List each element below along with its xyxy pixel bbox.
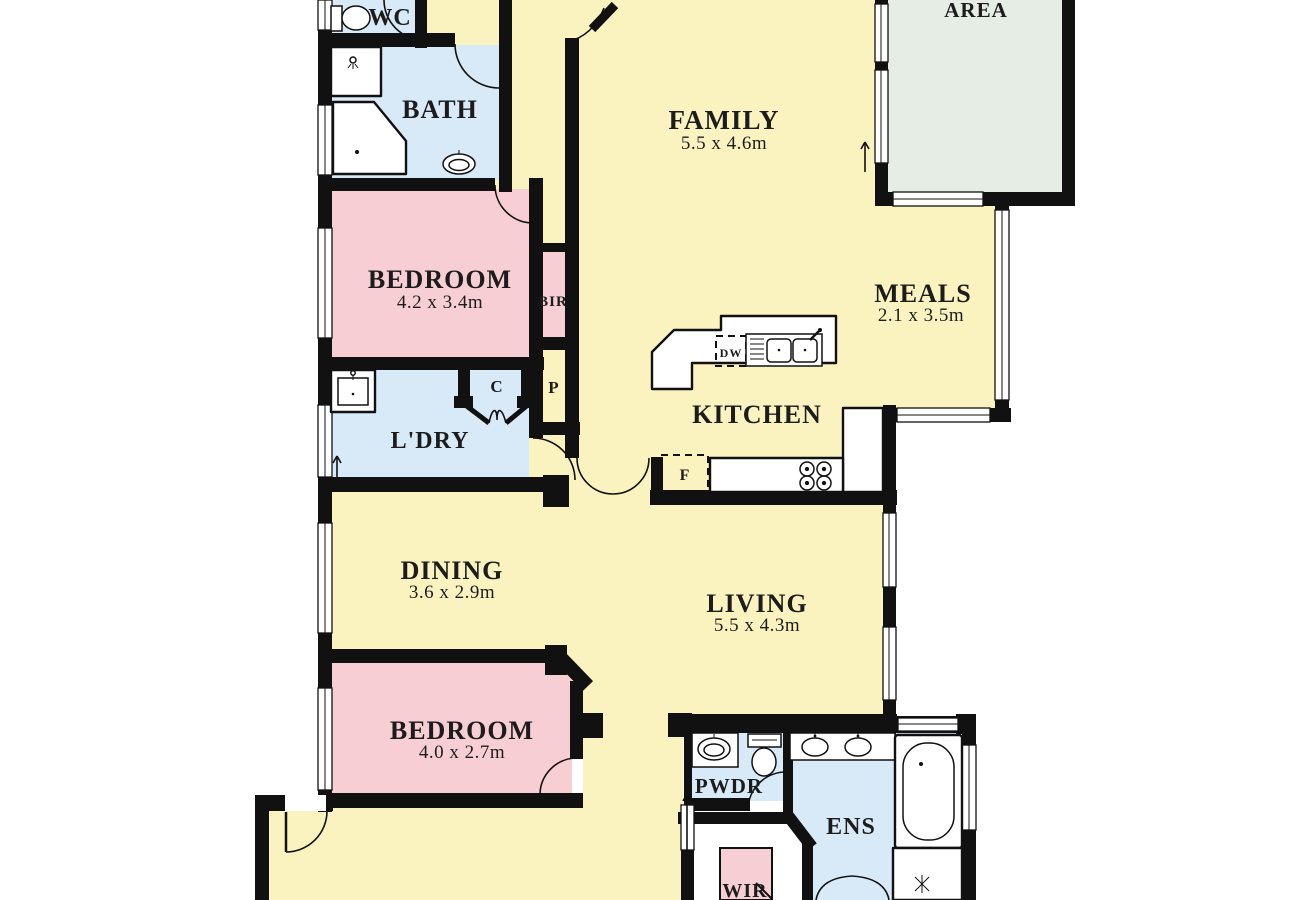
dims-bedroom2: 4.0 x 2.7m bbox=[419, 742, 505, 763]
ens-vanity-icon bbox=[790, 733, 895, 760]
shower-unit-icon bbox=[331, 47, 381, 96]
window bbox=[318, 0, 332, 30]
window bbox=[875, 70, 888, 163]
room-outdoor-area bbox=[886, 0, 1064, 195]
window bbox=[318, 688, 332, 790]
label-meals: MEALS bbox=[874, 279, 971, 308]
label-family: FAMILY bbox=[668, 105, 779, 135]
dims-meals: 2.1 x 3.5m bbox=[878, 305, 964, 326]
toilet-icon bbox=[331, 6, 370, 31]
window bbox=[875, 4, 888, 62]
window bbox=[883, 627, 896, 700]
window bbox=[318, 228, 332, 338]
label-bedroom2: BEDROOM bbox=[390, 716, 534, 745]
label-pwdr: PWDR bbox=[695, 774, 763, 798]
label-dishwasher: DW bbox=[720, 346, 743, 360]
label-bedroom1: BEDROOM bbox=[368, 265, 512, 294]
label-fridge: F bbox=[680, 467, 691, 484]
room-rumpus bbox=[267, 806, 587, 900]
window bbox=[318, 523, 332, 633]
kitchen-bench-bottom bbox=[710, 458, 843, 492]
kitchen-sink-icon bbox=[746, 328, 822, 366]
dims-living: 5.5 x 4.3m bbox=[714, 615, 800, 636]
door-opening bbox=[285, 795, 326, 811]
kitchen-bench-right bbox=[843, 408, 883, 492]
label-bath: BATH bbox=[402, 95, 478, 124]
shower-icon bbox=[893, 848, 962, 900]
label-area: AREA bbox=[944, 0, 1008, 22]
label-wc: WC bbox=[368, 5, 411, 31]
label-wir: WIR bbox=[722, 880, 767, 900]
label-laundry: L'DRY bbox=[391, 428, 470, 454]
hallway bbox=[583, 725, 683, 900]
window bbox=[318, 105, 332, 175]
window bbox=[898, 718, 958, 731]
label-cupboard: C bbox=[490, 377, 503, 396]
dims-bedroom1: 4.2 x 3.4m bbox=[397, 292, 483, 313]
dims-family: 5.5 x 4.6m bbox=[681, 133, 767, 154]
laundry-tub-icon bbox=[331, 370, 375, 412]
window bbox=[897, 408, 990, 422]
label-kitchen: KITCHEN bbox=[692, 400, 822, 429]
label-dining: DINING bbox=[401, 556, 504, 585]
label-bir: BIR bbox=[538, 294, 568, 310]
label-pantry: P bbox=[548, 378, 559, 397]
floorplan: WC BATH BEDROOM 4.2 x 3.4m BIR P C L'DRY… bbox=[0, 0, 1300, 900]
dims-dining: 3.6 x 2.9m bbox=[409, 582, 495, 603]
pwdr-basin-icon bbox=[692, 733, 738, 767]
window bbox=[318, 405, 332, 477]
label-living: LIVING bbox=[706, 589, 807, 618]
window bbox=[893, 192, 983, 206]
window bbox=[883, 513, 896, 587]
label-ens: ENS bbox=[826, 814, 876, 840]
window bbox=[995, 210, 1009, 400]
window bbox=[962, 745, 976, 830]
bathtub-icon bbox=[895, 735, 962, 848]
